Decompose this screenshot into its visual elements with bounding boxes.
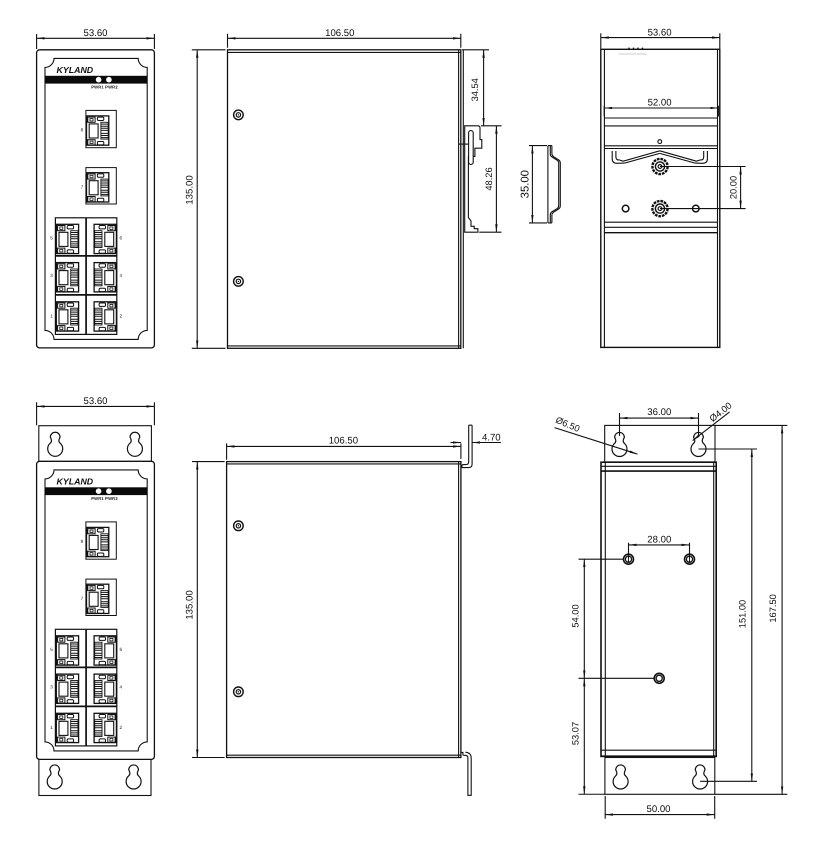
svg-text:53.60: 53.60 [83, 28, 107, 39]
svg-text:36.00: 36.00 [647, 407, 671, 418]
svg-text:28.00: 28.00 [647, 534, 671, 545]
svg-text:Ø4.00: Ø4.00 [708, 400, 734, 423]
svg-text:50.00: 50.00 [646, 804, 670, 815]
svg-text:106.50: 106.50 [325, 28, 354, 39]
svg-text:48.26: 48.26 [484, 167, 494, 190]
svg-text:167.50: 167.50 [768, 594, 778, 622]
svg-text:135.00: 135.00 [184, 175, 195, 204]
svg-text:53.07: 53.07 [571, 722, 581, 745]
svg-text:106.50: 106.50 [329, 436, 358, 447]
svg-text:20.00: 20.00 [728, 176, 738, 199]
svg-text:151.00: 151.00 [738, 600, 748, 628]
svg-text:52.00: 52.00 [648, 98, 672, 109]
svg-text:135.00: 135.00 [185, 590, 196, 619]
svg-text:53.60: 53.60 [83, 396, 107, 407]
svg-text:54.00: 54.00 [571, 604, 581, 627]
svg-text:34.54: 34.54 [470, 78, 480, 101]
svg-text:53.60: 53.60 [648, 27, 672, 38]
svg-text:35.00: 35.00 [519, 170, 531, 198]
svg-text:Ø6.50: Ø6.50 [554, 415, 581, 434]
